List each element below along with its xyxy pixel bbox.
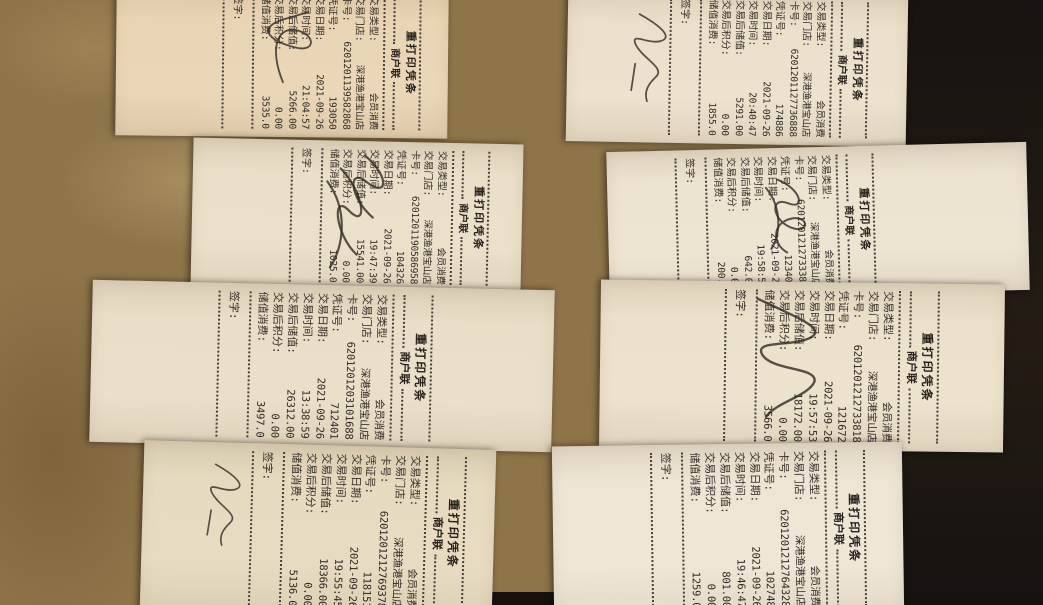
receipt-fields: 交易类型:会员消费 交易门店:深港渔港宝山店 卡号:62012011277368… xyxy=(703,0,827,138)
value-transaction-time: 21:04:57 xyxy=(297,85,311,129)
value-points-after: 0.00 xyxy=(774,417,789,442)
receipt-5: 重打印凭条 商户联 交易类型:会员消费 交易门店:深港渔港宝山店 卡号:6201… xyxy=(89,280,555,452)
label-store: 交易门店: xyxy=(799,1,813,47)
signature-label: 签字: xyxy=(255,451,274,605)
value-transaction-type: 会员消费 xyxy=(364,93,378,130)
value-transaction-date: 2021-09-26 xyxy=(747,546,763,605)
label-transaction-type: 交易类型: xyxy=(434,151,448,197)
value-balance-after: 26312.00 xyxy=(281,389,297,438)
value-voucher-number: 118151 xyxy=(358,571,374,605)
label-voucher-number: 凭证号: xyxy=(777,156,791,192)
divider xyxy=(667,0,671,135)
value-stored-value-spend: 5136.0 xyxy=(284,569,300,605)
label-points-after: 交易后积分: xyxy=(718,0,732,56)
value-store: 深港渔港宝山店 xyxy=(797,72,812,137)
label-transaction-time: 交易时间: xyxy=(298,292,314,343)
value-transaction-date: 2021-09-26 xyxy=(344,547,361,605)
label-voucher-number: 凭证号: xyxy=(325,0,339,32)
label-balance-after: 交易后储值: xyxy=(283,292,299,354)
value-transaction-date: 2021-09-26 xyxy=(378,228,393,283)
label-card-number: 卡号: xyxy=(791,155,805,181)
label-transaction-date: 交易日期: xyxy=(764,156,779,202)
value-transaction-type: 会员消费 xyxy=(878,402,893,443)
receipt-title: 重打印凭条 xyxy=(443,457,463,605)
value-voucher-number: 193050 xyxy=(324,96,338,129)
value-card-number: 6201201190586958 xyxy=(405,196,420,285)
receipt-7: 重打印凭条 商户联 交易类型:会员消费 交易门店:深港渔港宝山店 卡号:6201… xyxy=(140,440,497,605)
label-stored-value-spend: 储值消费: xyxy=(761,289,776,340)
divider xyxy=(837,549,840,605)
label-points-after: 交易后积分: xyxy=(723,157,738,213)
value-balance-after: 5291.00 xyxy=(730,97,744,136)
value-stored-value-spend: 1259.0 xyxy=(688,572,703,605)
divider xyxy=(436,456,440,513)
value-voucher-number: 102748 xyxy=(762,571,777,605)
value-store: 深港渔港宝山店 xyxy=(351,65,365,130)
value-store: 深港渔港宝山店 xyxy=(418,219,433,284)
label-transaction-type: 交易类型: xyxy=(406,455,422,506)
signature-scribble xyxy=(188,455,256,555)
label-store: 交易门店: xyxy=(358,294,374,345)
label-points-after: 交易后积分: xyxy=(271,0,285,51)
label-voucher-number: 凭证号: xyxy=(362,454,378,494)
copy-label: 商户联 xyxy=(841,205,855,235)
divider xyxy=(462,151,465,199)
signature-label: 签字: xyxy=(682,158,699,290)
divider xyxy=(393,82,396,130)
label-transaction-type: 交易类型: xyxy=(813,1,827,47)
value-points-after: 0.00 xyxy=(716,114,730,136)
value-transaction-date: 2021-09-26 xyxy=(765,233,780,289)
signature-scribble xyxy=(611,5,684,113)
signature-label: 签字: xyxy=(731,289,748,441)
receipt-4: 重打印凭条 商户联 交易类型:会员消费 交易门店:深港渔港宝山店 卡号:6201… xyxy=(606,142,1029,300)
value-transaction-time: 13:38:59 xyxy=(296,389,312,438)
label-balance-after: 交易后储值: xyxy=(284,0,298,51)
value-card-number: 6201201203101688 xyxy=(341,342,358,440)
divider xyxy=(705,158,710,290)
receipt-fields: 交易类型:会员消费 交易门店:深港渔港宝山店 卡号:62012012127338… xyxy=(759,289,894,443)
value-transaction-type: 会员消费 xyxy=(432,247,446,284)
value-stored-value-spend: 1025.0 xyxy=(324,249,338,282)
divider xyxy=(221,0,224,128)
label-transaction-time: 交易时间: xyxy=(750,156,765,202)
value-card-number: 6201201127736888 xyxy=(784,49,799,138)
divider xyxy=(897,291,901,443)
label-balance-after: 交易后储值: xyxy=(737,157,752,213)
divider xyxy=(433,554,437,605)
value-transaction-time: 19:55:45 xyxy=(329,558,345,605)
divider xyxy=(288,148,293,282)
label-store: 交易门店: xyxy=(420,150,434,196)
label-transaction-date: 交易日期: xyxy=(313,293,329,344)
copy-label: 商户联 xyxy=(428,517,444,550)
label-store: 交易门店: xyxy=(391,455,407,506)
divider xyxy=(871,154,876,286)
receipt-title: 重打印凭条 xyxy=(855,154,873,286)
label-transaction-date: 交易日期: xyxy=(759,0,773,46)
divider xyxy=(841,2,844,51)
label-stored-value-spend: 储值消费: xyxy=(287,452,303,503)
value-balance-after: 801.00 xyxy=(718,571,733,605)
divider xyxy=(828,2,832,138)
label-points-after: 交易后积分: xyxy=(701,452,717,514)
value-store: 深港渔港宝山店 xyxy=(806,222,821,287)
value-store: 深港渔港宝山店 xyxy=(863,371,879,443)
divider xyxy=(698,0,702,135)
value-card-number: 6201201212764328 xyxy=(776,509,792,605)
copy-line: 商户联 xyxy=(833,2,849,138)
receipt-title: 重打印凭条 xyxy=(401,0,417,130)
label-transaction-date: 交易日期: xyxy=(346,454,362,505)
value-balance-after: 5266.00 xyxy=(283,90,297,129)
label-stored-value-spend: 储值消费: xyxy=(254,291,270,342)
receipt-title: 重打印凭条 xyxy=(848,2,865,138)
receipt-1: 重打印凭条 商户联 交易类型:会员消费 交易门店:深港渔港宝山店 卡号:6201… xyxy=(115,0,449,139)
receipt-title: 重打印凭条 xyxy=(410,295,429,441)
label-stored-value-spend: 储值消费: xyxy=(257,0,271,41)
label-points-after: 交易后积分: xyxy=(302,453,319,515)
label-card-number: 卡号: xyxy=(377,455,393,484)
divider xyxy=(403,295,406,348)
divider xyxy=(908,388,911,444)
divider xyxy=(910,291,913,347)
value-transaction-date: 2021-09-26 xyxy=(311,378,327,440)
value-voucher-number: 174886 xyxy=(770,103,784,136)
copy-line: 商户联 xyxy=(902,291,919,443)
divider xyxy=(865,2,869,138)
value-transaction-time: 19:46:47 xyxy=(732,559,748,605)
divider xyxy=(460,237,463,285)
label-store: 交易门店: xyxy=(352,0,366,42)
receipt-fields: 交易类型:会员消费 交易门店:深港渔港宝山店 卡号:62012012127333… xyxy=(710,155,835,290)
label-transaction-time: 交易时间: xyxy=(731,452,747,503)
label-transaction-time: 交易时间: xyxy=(366,149,380,195)
label-transaction-type: 交易类型: xyxy=(879,291,894,342)
value-card-number: 6201201139582868 xyxy=(337,41,351,129)
value-voucher-number: 712401 xyxy=(326,402,342,439)
divider xyxy=(486,152,491,286)
label-card-number: 卡号: xyxy=(850,291,865,320)
value-points-after: 0.00 xyxy=(299,582,315,605)
receipt-fields: 交易类型:会员消费 交易门店:深港渔港宝山店 卡号:62012012127693… xyxy=(284,452,422,605)
label-balance-after: 交易后储值: xyxy=(790,290,806,352)
label-stored-value-spend: 储值消费: xyxy=(710,157,725,203)
label-transaction-date: 交易日期: xyxy=(311,0,325,41)
signature-label: 签字: xyxy=(296,148,312,282)
value-transaction-type: 会员消费 xyxy=(370,399,386,441)
receipt-paper: 重打印凭条 商户联 交易类型:会员消费 交易门店:深港渔港宝山店 卡号:6201… xyxy=(606,142,1029,300)
divider xyxy=(418,0,421,130)
divider xyxy=(723,289,727,441)
divider xyxy=(319,148,324,282)
value-transaction-date: 2021-09-26 xyxy=(819,381,835,442)
copy-line: 商户联 xyxy=(454,151,470,285)
receipt-2: 重打印凭条 商户联 交易类型:会员消费 交易门店:深港渔港宝山店 卡号:6201… xyxy=(566,0,909,147)
label-stored-value-spend: 储值消费: xyxy=(686,452,702,503)
divider xyxy=(382,0,385,130)
divider xyxy=(839,89,842,138)
value-stored-value-spend: 1855.0 xyxy=(703,102,717,135)
divider xyxy=(824,451,828,605)
receipt-fields: 交易类型:会员消费 交易门店:深港渔港宝山店 卡号:62012012127643… xyxy=(686,451,822,605)
value-points-after: 0.00 xyxy=(270,107,284,129)
value-store: 深港渔港宝山店 xyxy=(388,537,405,605)
receipt-paper: 重打印凭条 商户联 交易类型:会员消费 交易门店:深港渔港宝山店 卡号:6201… xyxy=(89,280,555,452)
copy-label: 商户联 xyxy=(903,351,918,384)
label-transaction-date: 交易日期: xyxy=(380,149,394,195)
label-points-after: 交易后积分: xyxy=(339,149,354,205)
label-store: 交易门店: xyxy=(865,291,880,342)
copy-line: 商户联 xyxy=(387,0,402,130)
value-transaction-type: 会员消费 xyxy=(403,568,419,605)
receipt-paper: 重打印凭条 商户联 交易类型:会员消费 交易门店:深港渔港宝山店 卡号:6201… xyxy=(140,440,497,605)
receipt-title: 重打印凭条 xyxy=(918,291,936,443)
label-balance-after: 交易后储值: xyxy=(731,0,745,56)
divider xyxy=(394,0,397,44)
value-store: 深港渔港宝山店 xyxy=(791,535,807,605)
divider xyxy=(215,291,220,437)
label-transaction-type: 交易类型: xyxy=(805,451,821,502)
receipt-fields: 交易类型:会员消费 交易门店:深港渔港宝山店 卡号:62012011395828… xyxy=(256,0,379,130)
divider xyxy=(863,450,867,605)
value-transaction-type: 会员消费 xyxy=(811,100,825,137)
label-points-after: 交易后积分: xyxy=(775,290,791,352)
divider xyxy=(649,453,653,605)
value-balance-after: 18366.00 xyxy=(314,558,330,605)
label-voucher-number: 凭证号: xyxy=(772,1,786,37)
divider xyxy=(449,151,454,285)
label-transaction-time: 交易时间: xyxy=(745,0,759,46)
divider xyxy=(251,0,254,129)
copy-line: 商户联 xyxy=(829,450,846,605)
divider xyxy=(681,453,685,605)
receipt-3: 重打印凭条 商户联 交易类型:会员消费 交易门店:深港渔港宝山店 卡号:6201… xyxy=(190,138,523,295)
label-card-number: 卡号: xyxy=(407,150,421,176)
label-voucher-number: 凭证号: xyxy=(328,293,344,333)
label-stored-value-spend: 储值消费: xyxy=(705,0,719,46)
value-points-after: 0.00 xyxy=(703,584,718,605)
value-transaction-date: 2021-09-26 xyxy=(757,81,771,136)
value-transaction-time: 19:47:39 xyxy=(364,239,378,283)
value-transaction-date: 2021-09-26 xyxy=(310,74,324,129)
signature-label: 签字: xyxy=(223,291,241,437)
receipt-paper: 重打印凭条 商户联 交易类型:会员消费 交易门店:深港渔港宝山店 卡号:6201… xyxy=(566,0,909,147)
value-voucher-number: 121672 xyxy=(834,406,849,443)
label-transaction-time: 交易时间: xyxy=(298,0,312,41)
divider xyxy=(754,289,758,441)
copy-label: 商户联 xyxy=(387,48,401,78)
label-card-number: 卡号: xyxy=(343,293,358,322)
receipt-8: 重打印凭条 商户联 交易类型:会员消费 交易门店:深港渔港宝山店 卡号:6201… xyxy=(552,442,904,605)
label-transaction-time: 交易时间: xyxy=(805,290,820,341)
value-card-number: 6201201212733388 xyxy=(792,199,808,288)
label-balance-after: 交易后储值: xyxy=(316,453,333,515)
label-transaction-time: 交易时间: xyxy=(332,453,348,504)
value-points-after: 0.00 xyxy=(267,413,282,438)
divider xyxy=(846,154,849,201)
label-card-number: 卡号: xyxy=(775,451,790,480)
copy-label: 商户联 xyxy=(834,55,848,85)
label-balance-after: 交易后储值: xyxy=(352,149,367,205)
value-stored-value-spend: 3535.0 xyxy=(256,96,270,129)
label-stored-value-spend: 储值消费: xyxy=(326,148,340,194)
label-card-number: 卡号: xyxy=(786,1,800,27)
receipt-paper: 重打印凭条 商户联 交易类型:会员消费 交易门店:深港渔港宝山店 卡号:6201… xyxy=(115,0,449,139)
label-store: 交易门店: xyxy=(804,155,819,201)
label-transaction-date: 交易日期: xyxy=(746,452,762,503)
copy-label: 商户联 xyxy=(396,351,412,384)
label-points-after: 交易后积分: xyxy=(268,292,284,354)
divider xyxy=(401,388,404,441)
label-balance-after: 交易后储值: xyxy=(716,452,732,514)
signature-label: 签字: xyxy=(229,0,244,129)
value-points-after: 0.00 xyxy=(337,261,351,283)
divider xyxy=(674,158,679,290)
label-voucher-number: 凭证号: xyxy=(393,150,407,186)
value-transaction-time: 20:40:47 xyxy=(743,92,757,136)
label-voucher-number: 凭证号: xyxy=(761,451,776,491)
label-voucher-number: 凭证号: xyxy=(835,290,850,330)
receipt-title: 重打印凭条 xyxy=(845,450,863,605)
receipt-fields: 交易类型:会员消费 交易门店:深港渔港宝山店 卡号:62012012031016… xyxy=(252,291,389,440)
receipt-paper: 重打印凭条 商户联 交易类型:会员消费 交易门店:深港渔港宝山店 卡号:6201… xyxy=(190,138,523,295)
signature-label: 签字: xyxy=(675,0,691,135)
receipt-paper: 重打印凭条 商户联 交易类型:会员消费 交易门店:深港渔港宝山店 卡号:6201… xyxy=(552,442,904,605)
label-transaction-type: 交易类型: xyxy=(373,294,389,345)
value-transaction-time: 19:57:53 xyxy=(804,393,819,442)
photo-of-receipts: 重打印凭条 商户联 交易类型:会员消费 交易门店:深港渔港宝山店 卡号:6201… xyxy=(0,0,1043,605)
signature-label: 签字: xyxy=(657,453,674,605)
divider xyxy=(835,155,840,287)
value-balance-after: 18172.00 xyxy=(789,393,804,442)
value-card-number: 6201201212769378 xyxy=(373,511,391,605)
receipt-6: 重打印凭条 商户联 交易类型:会员消费 交易门店:深港渔港宝山店 卡号:6201… xyxy=(599,280,1005,453)
value-store: 深港渔港宝山店 xyxy=(356,368,372,440)
divider xyxy=(835,450,838,508)
label-transaction-type: 交易类型: xyxy=(818,155,833,201)
value-stored-value-spend: 3566.0 xyxy=(759,405,774,442)
label-transaction-type: 交易类型: xyxy=(365,0,379,42)
label-card-number: 卡号: xyxy=(339,0,353,22)
value-voucher-number: 104326 xyxy=(391,251,405,284)
copy-label: 商户联 xyxy=(830,512,845,545)
divider xyxy=(848,239,851,286)
value-stored-value-spend: 3497.0 xyxy=(252,401,268,438)
receipt-paper: 重打印凭条 商户联 交易类型:会员消费 交易门店:深港渔港宝山店 卡号:6201… xyxy=(599,280,1005,453)
divider xyxy=(936,292,940,444)
value-card-number: 6201201212733818 xyxy=(849,345,865,443)
label-transaction-date: 交易日期: xyxy=(820,290,835,341)
divider xyxy=(247,451,253,605)
receipt-fields: 交易类型:会员消费 交易门店:深港渔港宝山店 卡号:62012011905869… xyxy=(324,148,448,285)
copy-label: 商户联 xyxy=(455,203,469,233)
value-transaction-type: 会员消费 xyxy=(807,565,822,605)
value-balance-after: 15541.00 xyxy=(351,239,365,283)
receipt-title: 重打印凭条 xyxy=(469,151,487,285)
label-store: 交易门店: xyxy=(790,451,806,502)
